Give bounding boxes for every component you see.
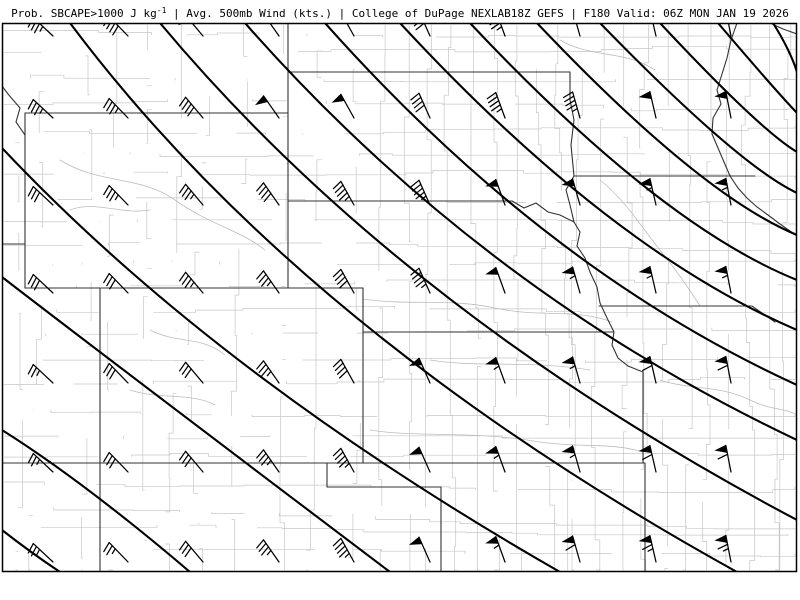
weather-map-page: Prob. SBCAPE>1000 J kg-1 | Avg. 500mb Wi…	[0, 0, 800, 600]
state-borders-layer	[2, 23, 775, 572]
height-contours-layer	[2, 23, 797, 572]
weather-map-canvas	[0, 0, 800, 600]
county-lines-layer	[4, 25, 795, 570]
map-frame-border	[3, 24, 797, 572]
